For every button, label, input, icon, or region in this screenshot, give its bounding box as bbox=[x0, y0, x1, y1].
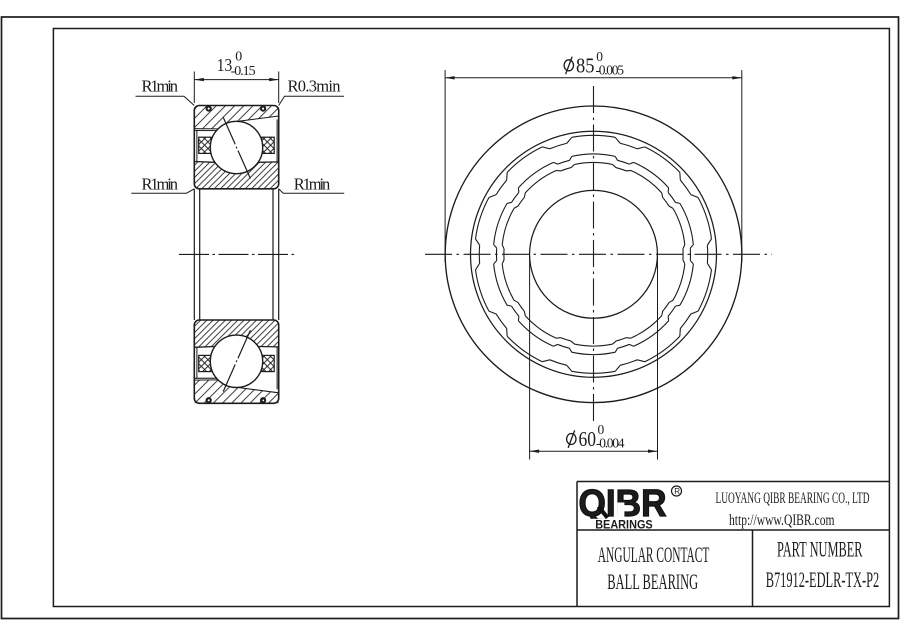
svg-text:B71912-EDLR-TX-P2: B71912-EDLR-TX-P2 bbox=[766, 567, 880, 592]
svg-text:LUOYANG QIBR BEARING CO., LTD: LUOYANG QIBR BEARING CO., LTD bbox=[716, 490, 870, 507]
svg-text:85: 85 bbox=[576, 53, 595, 77]
svg-text:-0.15: -0.15 bbox=[231, 64, 256, 79]
svg-text:ANGULAR CONTACT: ANGULAR CONTACT bbox=[598, 542, 710, 567]
svg-text:60: 60 bbox=[579, 427, 597, 451]
svg-text:R1min: R1min bbox=[142, 76, 179, 95]
svg-text:0: 0 bbox=[235, 50, 242, 65]
svg-text:http://www.QIBR.com: http://www.QIBR.com bbox=[729, 512, 835, 529]
svg-text:R: R bbox=[674, 487, 680, 496]
svg-text:-0.005: -0.005 bbox=[596, 63, 625, 78]
svg-text:R1min: R1min bbox=[142, 174, 179, 193]
svg-text:BEARINGS: BEARINGS bbox=[595, 518, 653, 532]
svg-text:BALL BEARING: BALL BEARING bbox=[607, 569, 698, 594]
svg-text:R0.3min: R0.3min bbox=[288, 76, 341, 95]
svg-text:PART NUMBER: PART NUMBER bbox=[777, 537, 863, 562]
svg-text:-0.004: -0.004 bbox=[596, 436, 625, 451]
svg-text:R1min: R1min bbox=[294, 174, 331, 193]
